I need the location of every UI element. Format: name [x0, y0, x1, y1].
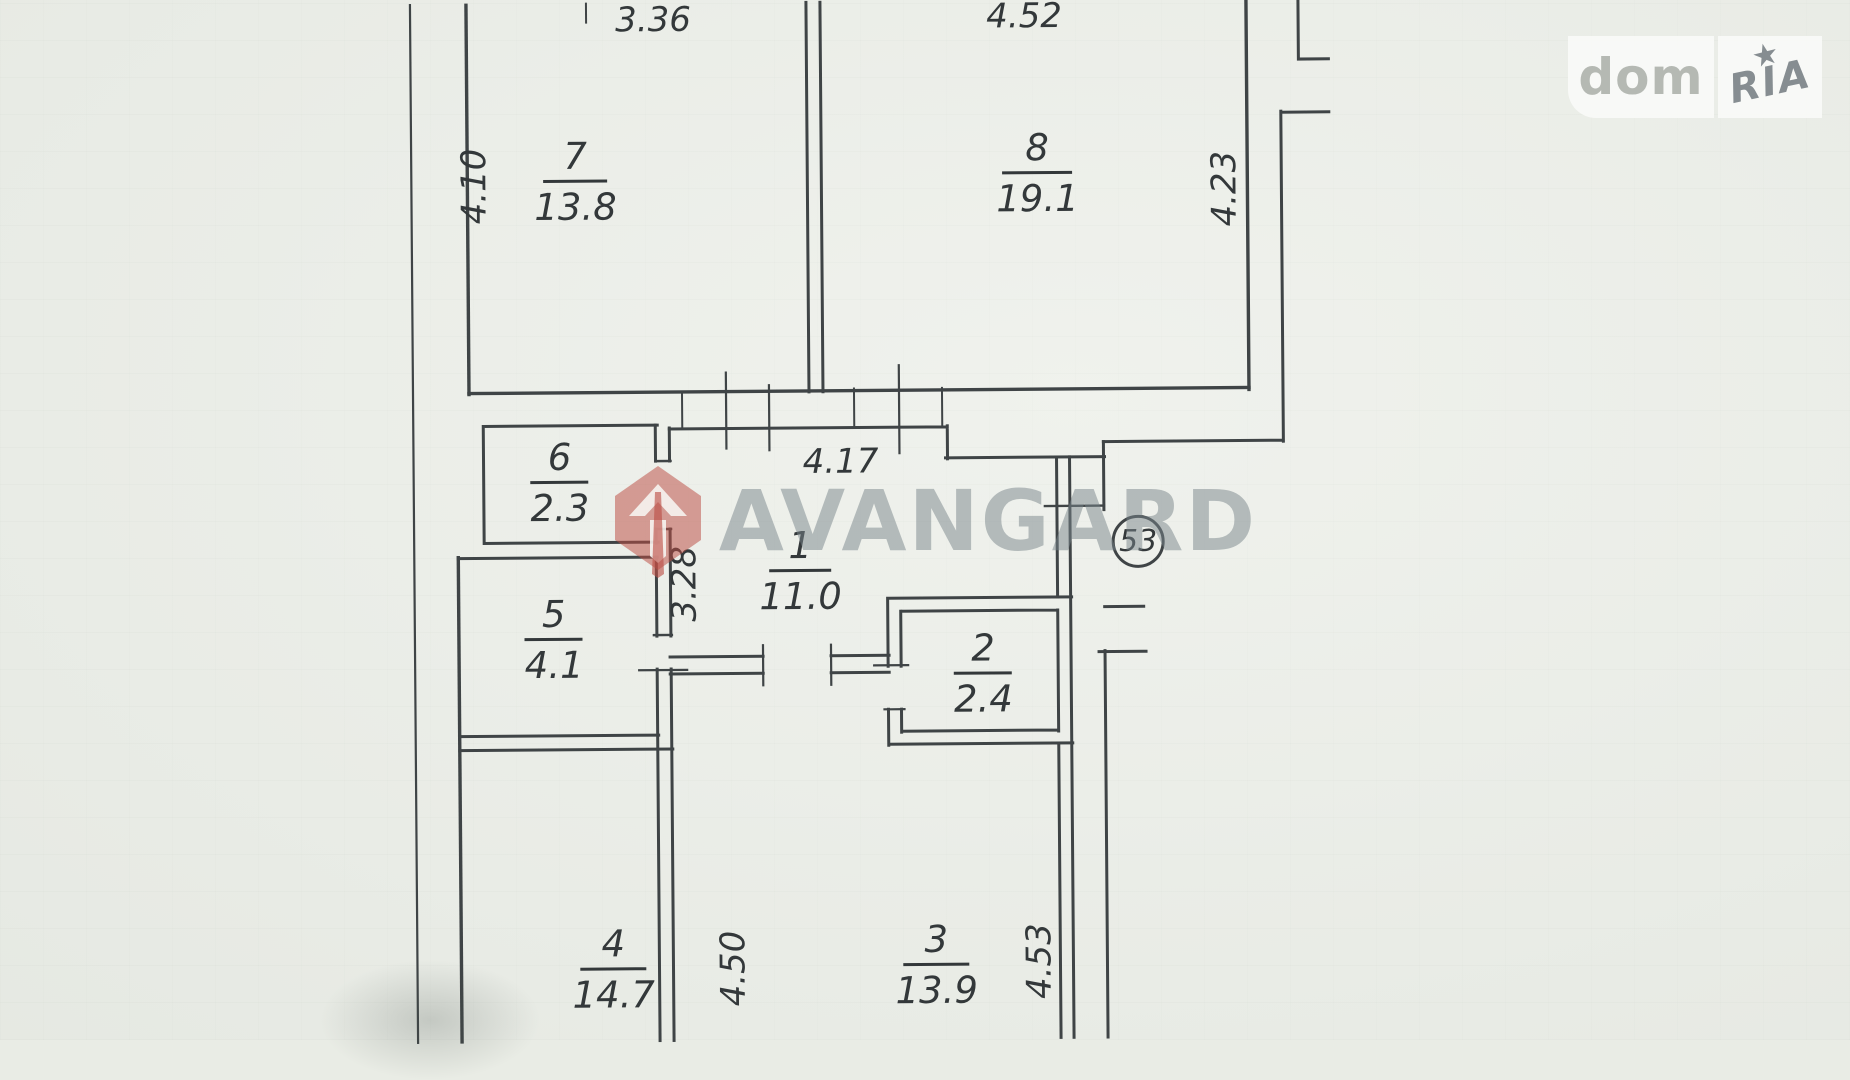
room-label-8: 8 19.1: [996, 129, 1079, 218]
dimension-room7-height: 4.10: [457, 149, 492, 225]
hall-bottom-band: [670, 655, 889, 674]
room5-room4-left-wall: [458, 558, 462, 1044]
room-number: 5: [524, 596, 583, 633]
dimension-room4-height: 4.50: [716, 931, 751, 1007]
room-label-5: 5 4.1: [524, 596, 584, 684]
room-area: 13.9: [895, 972, 978, 1010]
room-label-7: 7 13.8: [534, 137, 617, 226]
top-band-connectors: [682, 388, 942, 429]
room-area: 11.0: [759, 578, 842, 616]
label-divider-line: [1002, 171, 1072, 175]
avangard-watermark: AVANGARD: [719, 472, 1257, 570]
room-area: 14.7: [572, 976, 655, 1014]
top-band-upper-wall: [469, 387, 1249, 393]
room-number: 7: [534, 137, 617, 175]
room-area: 2.4: [954, 680, 1013, 717]
label-divider-line: [903, 963, 969, 967]
top-band-lower-wall: [669, 425, 1104, 461]
room-label-2: 2 2.4: [953, 629, 1013, 717]
entrance-stubs-lower: [1099, 606, 1146, 651]
label-divider-line: [525, 638, 583, 641]
room-label-4: 4 14.7: [572, 925, 655, 1014]
room-area: 2.3: [530, 490, 589, 527]
room-number: 8: [996, 129, 1079, 167]
room-number: 4: [572, 925, 655, 963]
label-divider-line: [531, 481, 589, 484]
room7-room8-divider-wall: [806, 1, 823, 392]
ria-logo: ★ RIA: [1718, 36, 1822, 118]
dimension-room8-width: 4.52: [986, 0, 1062, 34]
label-divider-line: [580, 967, 646, 971]
label-divider-line: [543, 179, 607, 183]
top-right-step-wall: [1298, 0, 1328, 59]
dom-logo: dom: [1568, 36, 1714, 118]
room-label-3: 3 13.9: [895, 921, 978, 1010]
door-ticks-room3: [763, 645, 831, 686]
dimension-room7-width: 3.36: [615, 3, 691, 38]
room-area: 13.8: [534, 188, 617, 226]
room-area: 4.1: [525, 647, 584, 684]
room5-bottom-band: [460, 735, 673, 751]
domria-watermark: dom ★ RIA: [1568, 36, 1822, 118]
dimension-room3-height: 4.53: [1022, 923, 1057, 999]
room-number: 6: [530, 439, 589, 476]
ria-logo-text: RIA: [1725, 51, 1815, 113]
dom-logo-text: dom: [1578, 48, 1703, 106]
room-number: 2: [953, 629, 1012, 666]
boundary-wall: [410, 4, 418, 1044]
room-area: 19.1: [996, 180, 1079, 218]
room-label-6: 6 2.3: [530, 439, 590, 527]
room-number: 3: [895, 921, 978, 959]
room8-right-wall: [1246, 0, 1249, 389]
avangard-logo-icon: [612, 462, 704, 578]
label-divider-line: [954, 671, 1012, 674]
dimension-room8-height: 4.23: [1207, 151, 1242, 227]
floorplan-scan: 7 13.8 8 19.1 6 2.3 5 4.1 1 11.0 2 2.4: [0, 0, 1850, 1040]
